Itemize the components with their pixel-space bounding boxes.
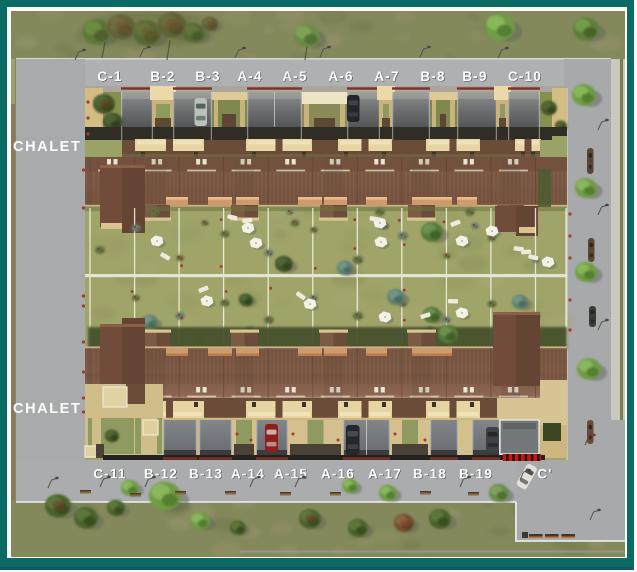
svg-text:C-1: C-1	[97, 69, 122, 84]
svg-text:CHALET: CHALET	[13, 401, 81, 417]
svg-text:C': C'	[537, 467, 552, 482]
svg-text:A-5: A-5	[282, 69, 307, 84]
svg-text:A-7: A-7	[374, 69, 399, 84]
svg-text:A-14: A-14	[231, 467, 265, 482]
svg-text:A-17: A-17	[368, 467, 402, 482]
svg-text:C-10: C-10	[508, 69, 542, 84]
svg-text:B-3: B-3	[195, 69, 220, 84]
svg-text:C-11: C-11	[93, 467, 126, 482]
svg-text:A-15: A-15	[274, 467, 308, 482]
svg-text:B-13: B-13	[189, 467, 223, 482]
svg-text:A-4: A-4	[237, 69, 262, 84]
svg-text:A-6: A-6	[328, 69, 353, 84]
svg-text:B-8: B-8	[420, 69, 445, 84]
svg-text:B-18: B-18	[413, 467, 447, 482]
svg-text:B-9: B-9	[462, 69, 487, 84]
svg-text:CHALET: CHALET	[13, 139, 81, 155]
svg-text:B-2: B-2	[150, 69, 175, 84]
